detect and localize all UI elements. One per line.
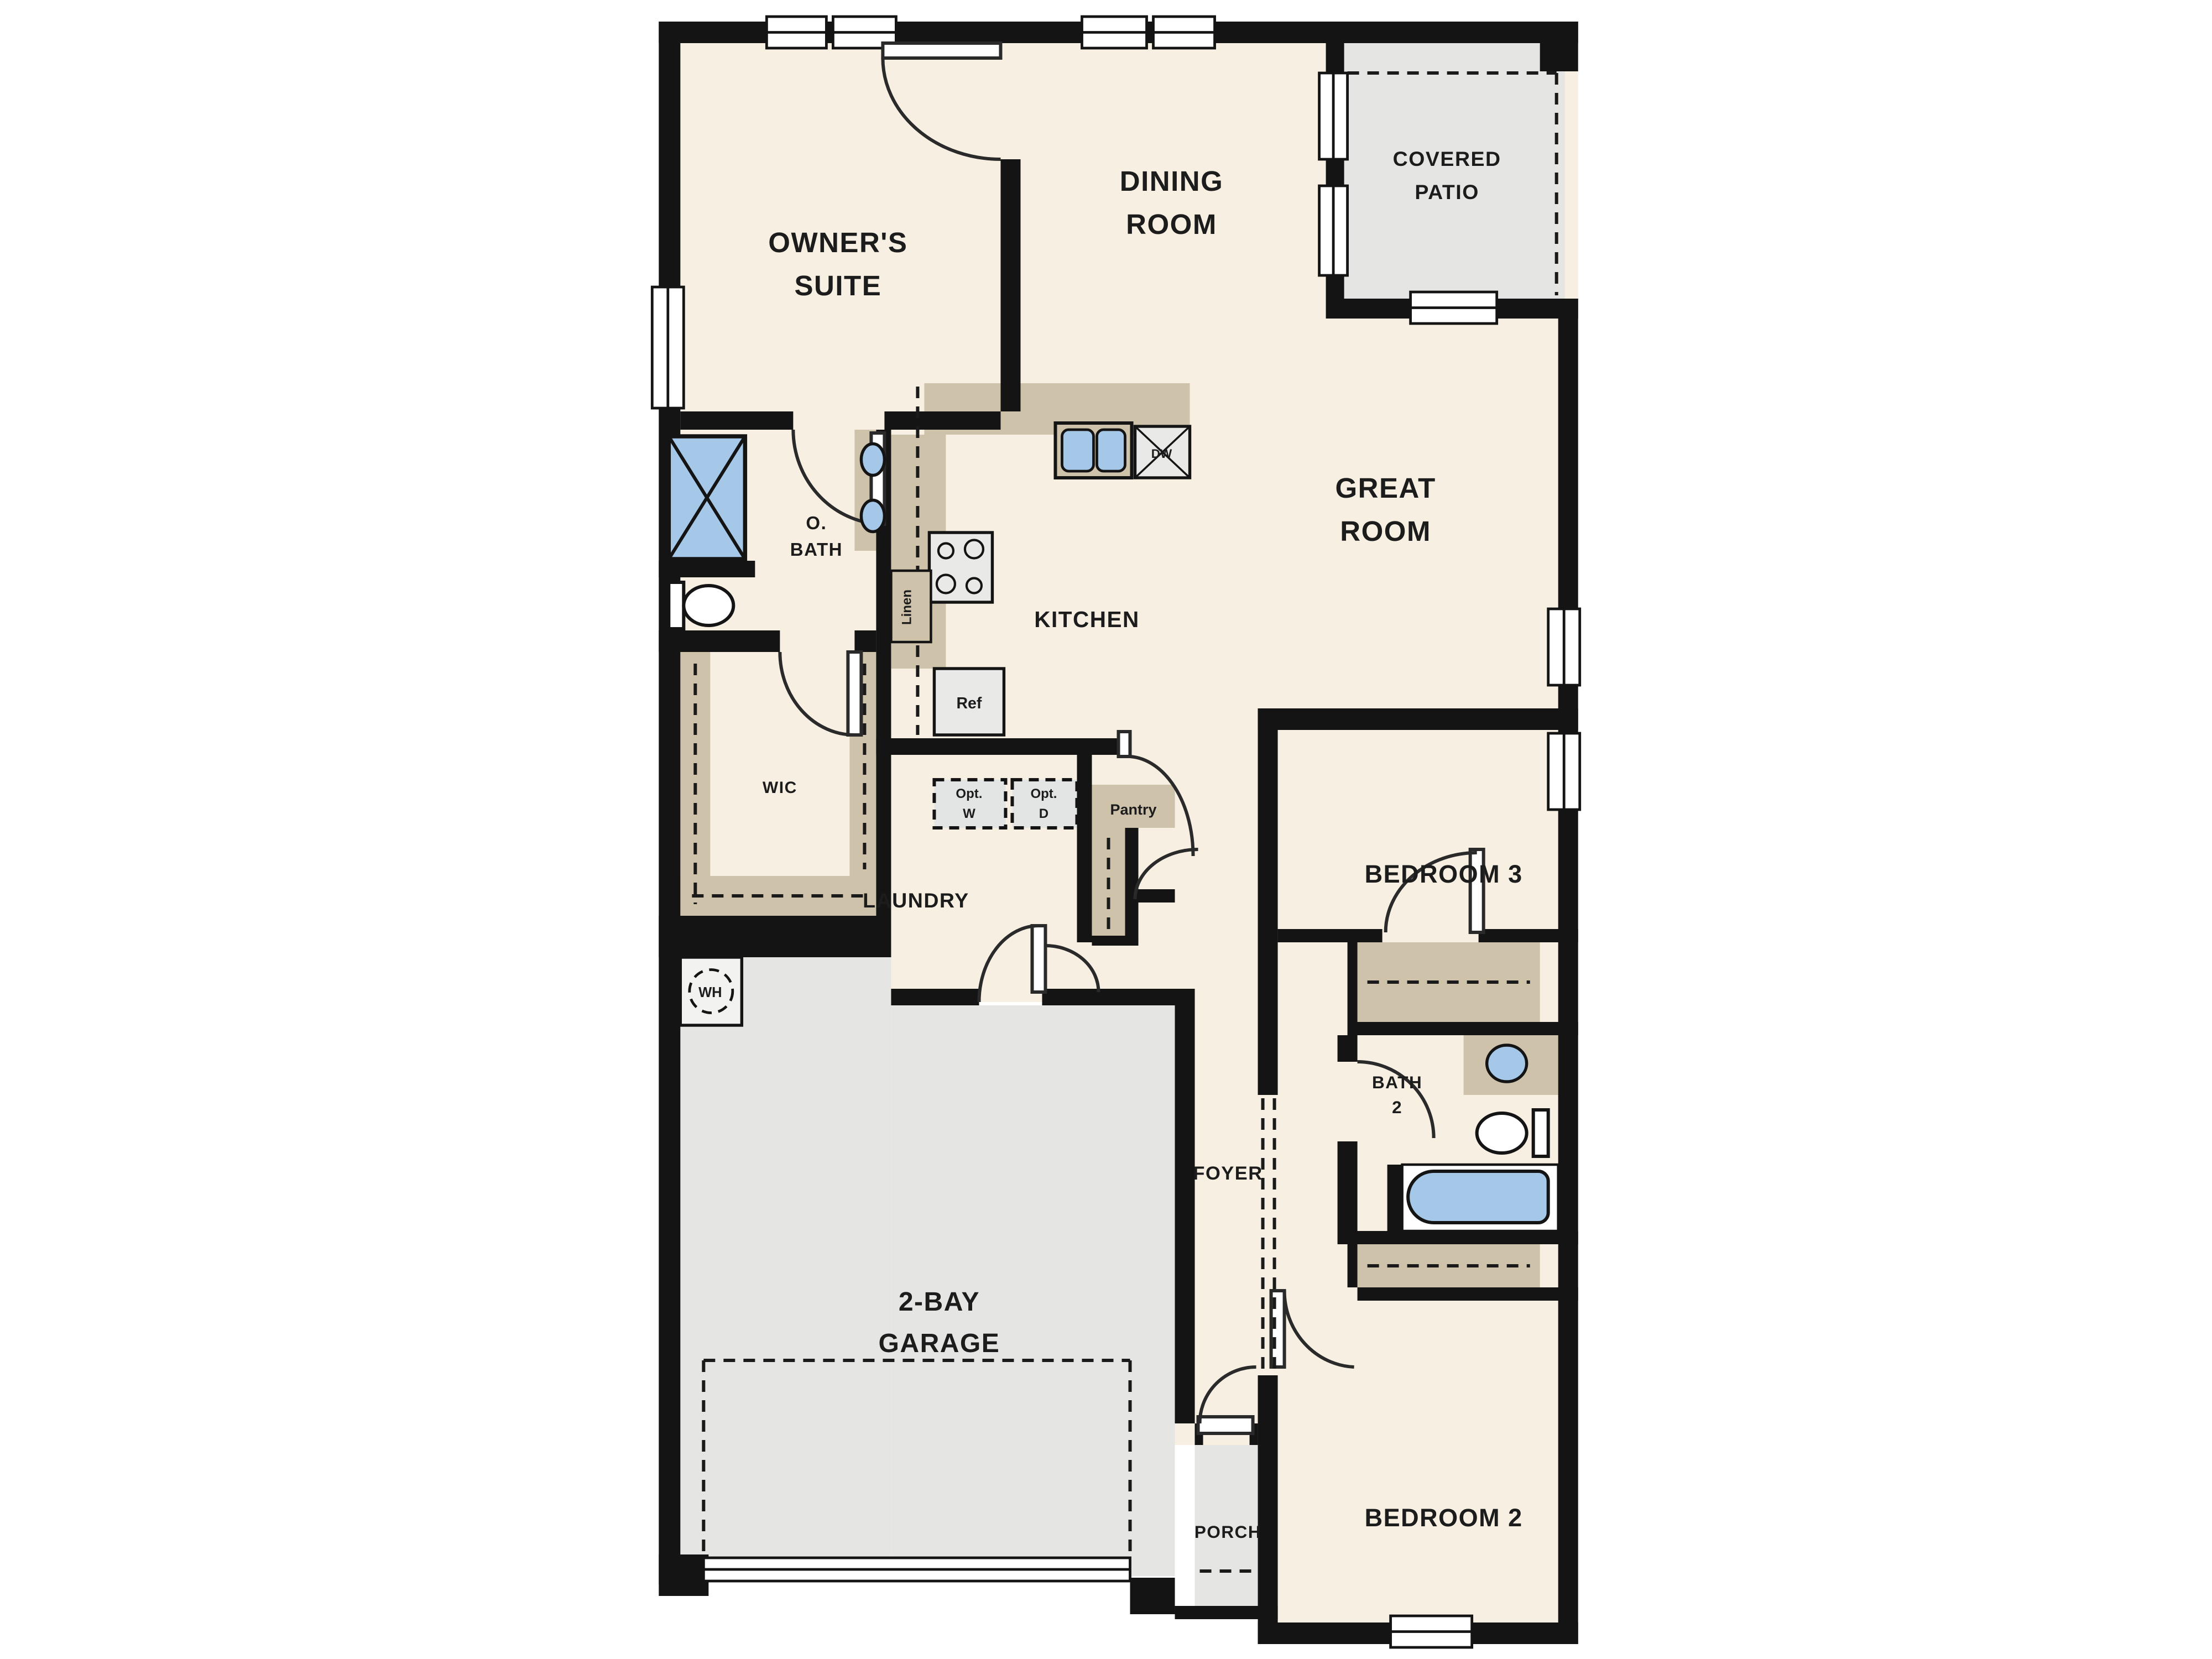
- label-owners-suite-1: OWNER'S: [768, 227, 907, 258]
- wall-laundry-right: [1077, 755, 1092, 942]
- window-great-room-right: [1548, 609, 1580, 685]
- label-laundry: LAUNDRY: [863, 889, 969, 912]
- wall-closet3-left: [1348, 942, 1358, 1022]
- wall-closet2-left: [1348, 1244, 1358, 1287]
- label-opt-w-1: Opt.: [956, 786, 982, 801]
- label-porch: PORCH: [1194, 1522, 1261, 1542]
- window-bedroom3-right: [1548, 733, 1580, 810]
- label-wic: WIC: [763, 779, 797, 797]
- obath-toilet-icon: [669, 582, 733, 629]
- wall-garage-top-b: [1042, 989, 1194, 1005]
- wall-bath2-left-b: [1338, 1141, 1358, 1231]
- wall-left-garage: [659, 957, 680, 1584]
- wall-closet2-bottom: [1358, 1287, 1578, 1301]
- wall-foyer-left: [1175, 1005, 1195, 1423]
- patio-bottom-wall-b: [1497, 299, 1578, 319]
- label-great-room-2: ROOM: [1340, 515, 1431, 547]
- wall-right: [1558, 299, 1578, 1644]
- garage-door: [703, 1558, 1130, 1581]
- window-dining-top-1: [1082, 17, 1146, 48]
- label-patio-2: PATIO: [1415, 180, 1479, 204]
- wall-bed2-bottom-b: [1472, 1623, 1578, 1644]
- label-kitchen: KITCHEN: [1034, 607, 1140, 632]
- floor-plan-page: OWNER'S SUITE DINING ROOM COVERED PATIO …: [0, 0, 2212, 1659]
- wall-greatroom-bottom: [1258, 708, 1578, 730]
- wall-wic-bottom: [659, 916, 891, 957]
- label-obath-1: O.: [806, 513, 827, 533]
- kitchen-sink-icon: [1055, 423, 1131, 478]
- wall-bed3-bottom-b: [1479, 929, 1578, 942]
- patio-left-wall-b: [1326, 159, 1344, 186]
- slider-dining-patio-1: [1319, 73, 1348, 159]
- garage-floor-left: [680, 957, 891, 1576]
- bath2-toilet-icon: [1477, 1110, 1548, 1156]
- garage-corner-right: [1130, 1578, 1175, 1614]
- wall-bed2-bottom-a: [1258, 1623, 1391, 1644]
- patio-bottom-wall-a: [1326, 299, 1411, 319]
- label-pantry: Pantry: [1110, 801, 1156, 818]
- wall-tub-left: [1387, 1165, 1402, 1231]
- wall-wic-right: [876, 652, 891, 916]
- patio-left-wall-c: [1326, 275, 1344, 299]
- window-dining-top-2: [1154, 17, 1215, 48]
- wall-suite-bath-b: [884, 411, 1000, 430]
- window-owners-suite-top-1: [766, 17, 826, 48]
- label-foyer: FOYER: [1193, 1163, 1262, 1184]
- patio-left-wall-a: [1326, 40, 1344, 73]
- label-wh: WH: [698, 985, 722, 1000]
- wall-wing-left-upper: [1258, 708, 1278, 1095]
- label-bath2-1: BATH: [1372, 1072, 1422, 1092]
- label-great-room-1: GREAT: [1335, 472, 1436, 504]
- floor-plan-drawing: OWNER'S SUITE DINING ROOM COVERED PATIO …: [0, 0, 2212, 1659]
- label-garage-2: GARAGE: [879, 1329, 1000, 1358]
- wall-bed3-bottom-a: [1278, 929, 1383, 942]
- label-dining-1: DINING: [1120, 165, 1224, 197]
- patio-corner-block: [1540, 22, 1578, 71]
- wall-garage-top-a: [891, 989, 979, 1005]
- window-owners-suite-left: [652, 287, 684, 408]
- label-garage-1: 2-BAY: [899, 1287, 980, 1317]
- garage-corner-left: [659, 1554, 708, 1596]
- label-patio-1: COVERED: [1393, 147, 1501, 170]
- label-owners-suite-2: SUITE: [795, 270, 882, 301]
- label-dw: DW: [1151, 447, 1172, 461]
- wall-closet3-bottom: [1348, 1022, 1578, 1035]
- wall-hall-stub: [1135, 889, 1175, 902]
- label-bedroom2: BEDROOM 2: [1365, 1504, 1523, 1532]
- shower-icon: [669, 436, 745, 559]
- bath2-tub-icon: [1402, 1165, 1558, 1231]
- label-ref: Ref: [956, 695, 982, 712]
- label-opt-w-2: W: [963, 806, 975, 821]
- wall-bath2-left-a: [1338, 1035, 1358, 1062]
- wall-bath-bottom-a: [659, 630, 780, 652]
- wall-suite-dining: [1000, 159, 1020, 411]
- label-bedroom3: BEDROOM 3: [1365, 860, 1523, 888]
- wall-toilet-stub: [659, 561, 755, 577]
- window-patio-bottom: [1411, 292, 1497, 324]
- label-dining-2: ROOM: [1126, 208, 1217, 240]
- label-opt-d-2: D: [1039, 806, 1048, 821]
- wall-laundry-top: [876, 738, 1125, 755]
- wall-bath-bottom-b: [854, 630, 876, 652]
- label-obath-2: BATH: [790, 539, 843, 560]
- label-bath2-2: 2: [1392, 1097, 1402, 1117]
- stove-icon: [929, 533, 992, 602]
- window-bedroom2-bottom: [1391, 1616, 1472, 1647]
- wall-wing-left-lower: [1258, 1375, 1278, 1644]
- label-linen: Linen: [899, 589, 914, 625]
- slider-dining-patio-2: [1319, 186, 1348, 275]
- label-opt-d-1: Opt.: [1030, 786, 1057, 801]
- bath2-sink-icon: [1487, 1045, 1527, 1082]
- wall-suite-bath-a: [680, 411, 793, 430]
- wall-bath2-bottom: [1338, 1231, 1578, 1244]
